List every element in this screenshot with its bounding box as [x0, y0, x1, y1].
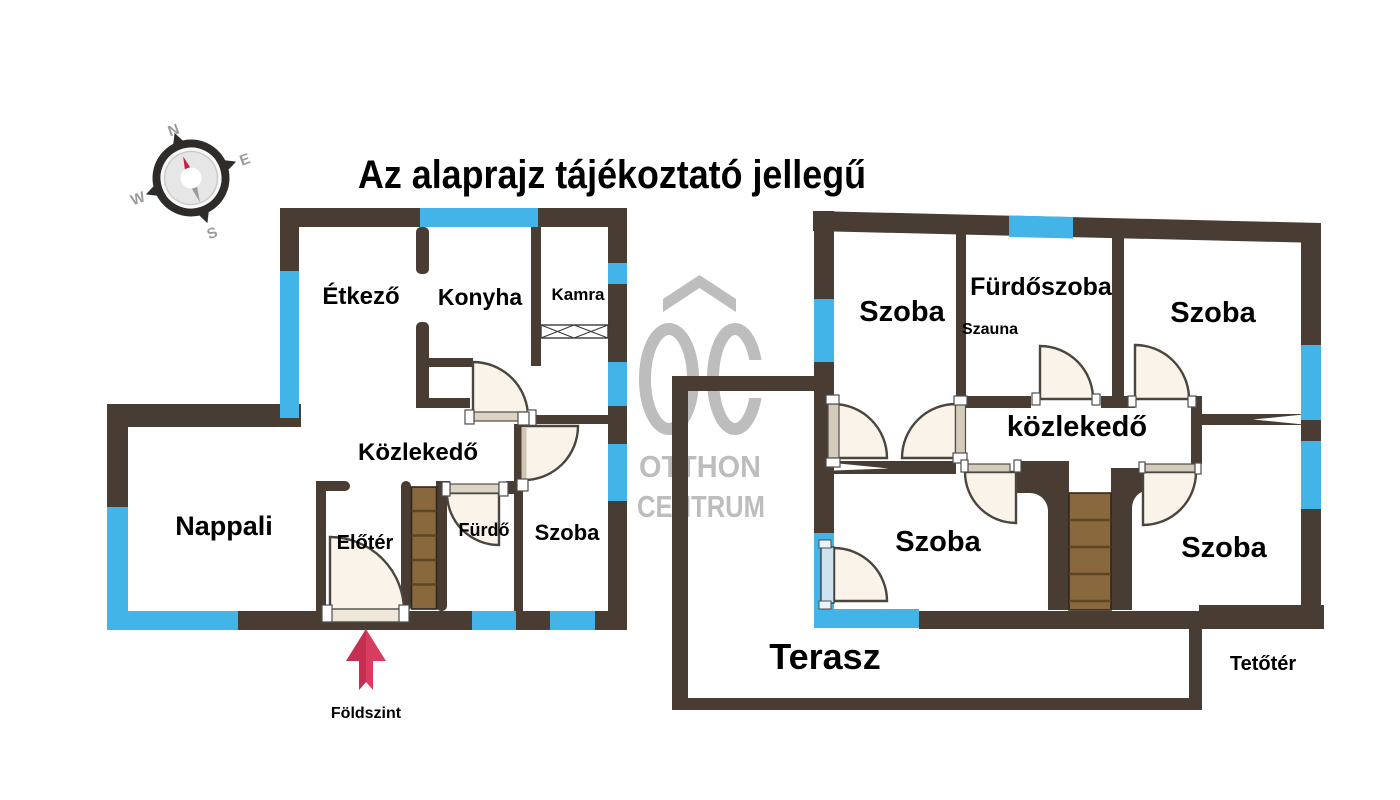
- svg-text:Szoba: Szoba: [895, 526, 981, 558]
- svg-text:Szoba: Szoba: [535, 520, 601, 545]
- svg-text:Szoba: Szoba: [859, 296, 945, 328]
- svg-text:Terasz: Terasz: [769, 636, 880, 677]
- svg-text:Szauna: Szauna: [962, 321, 1018, 338]
- svg-text:Közlekedő: Közlekedő: [358, 439, 478, 466]
- svg-text:Fürdő: Fürdő: [459, 520, 510, 540]
- svg-text:OTTHON: OTTHON: [639, 449, 761, 484]
- svg-text:Földszint: Földszint: [331, 705, 402, 722]
- svg-text:Az alaprajz tájékoztató jelleg: Az alaprajz tájékoztató jellegű: [358, 153, 866, 197]
- svg-text:CENTRUM: CENTRUM: [637, 489, 765, 524]
- svg-text:Előtér: Előtér: [337, 532, 394, 554]
- svg-text:Nappali: Nappali: [175, 511, 273, 541]
- svg-text:Szoba: Szoba: [1170, 297, 1256, 329]
- svg-text:Szoba: Szoba: [1181, 532, 1267, 564]
- svg-text:Fürdőszoba: Fürdőszoba: [970, 273, 1113, 301]
- svg-text:közlekedő: közlekedő: [1007, 411, 1147, 443]
- svg-text:Konyha: Konyha: [438, 284, 523, 310]
- svg-text:Kamra: Kamra: [552, 285, 605, 304]
- svg-text:Étkező: Étkező: [322, 282, 399, 310]
- svg-text:Tetőtér: Tetőtér: [1230, 653, 1297, 675]
